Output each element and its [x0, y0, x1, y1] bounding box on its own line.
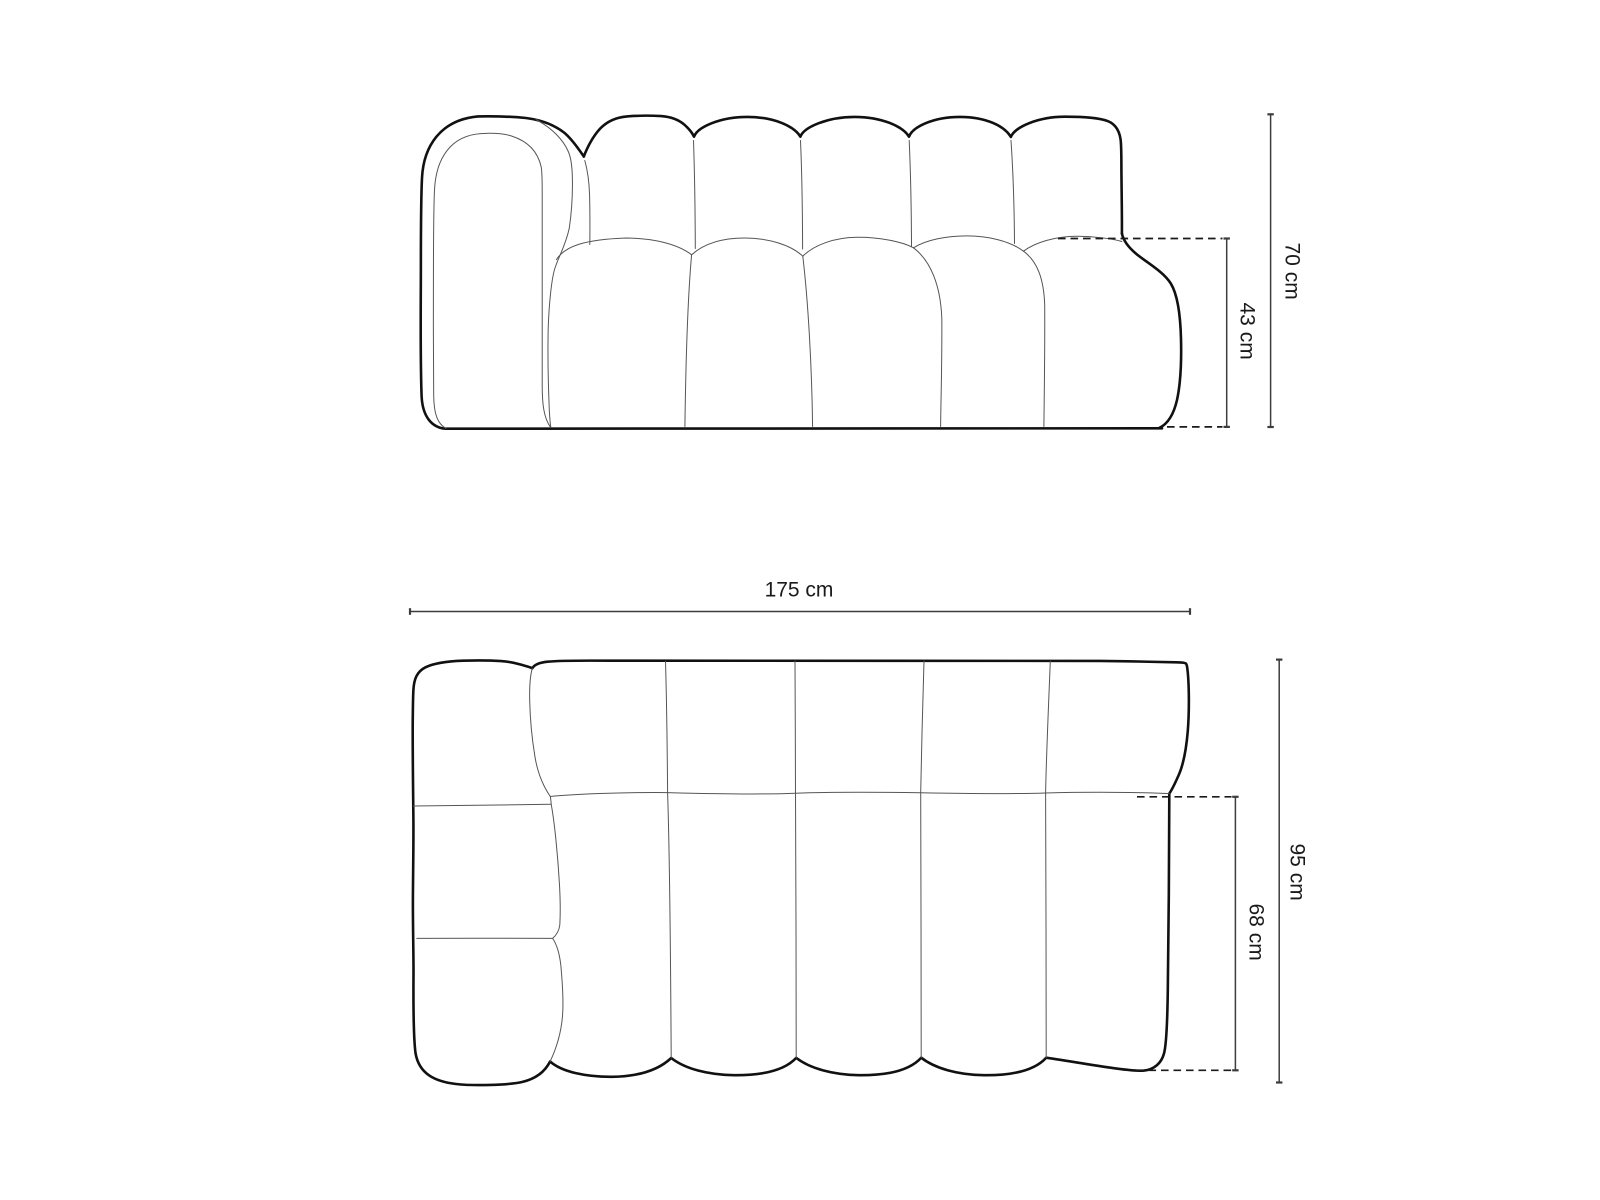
- svg-text:43 cm: 43 cm: [1236, 303, 1259, 360]
- svg-text:95 cm: 95 cm: [1286, 844, 1309, 901]
- svg-text:68 cm: 68 cm: [1245, 904, 1268, 961]
- svg-text:175 cm: 175 cm: [765, 579, 834, 602]
- svg-text:70 cm: 70 cm: [1281, 243, 1304, 300]
